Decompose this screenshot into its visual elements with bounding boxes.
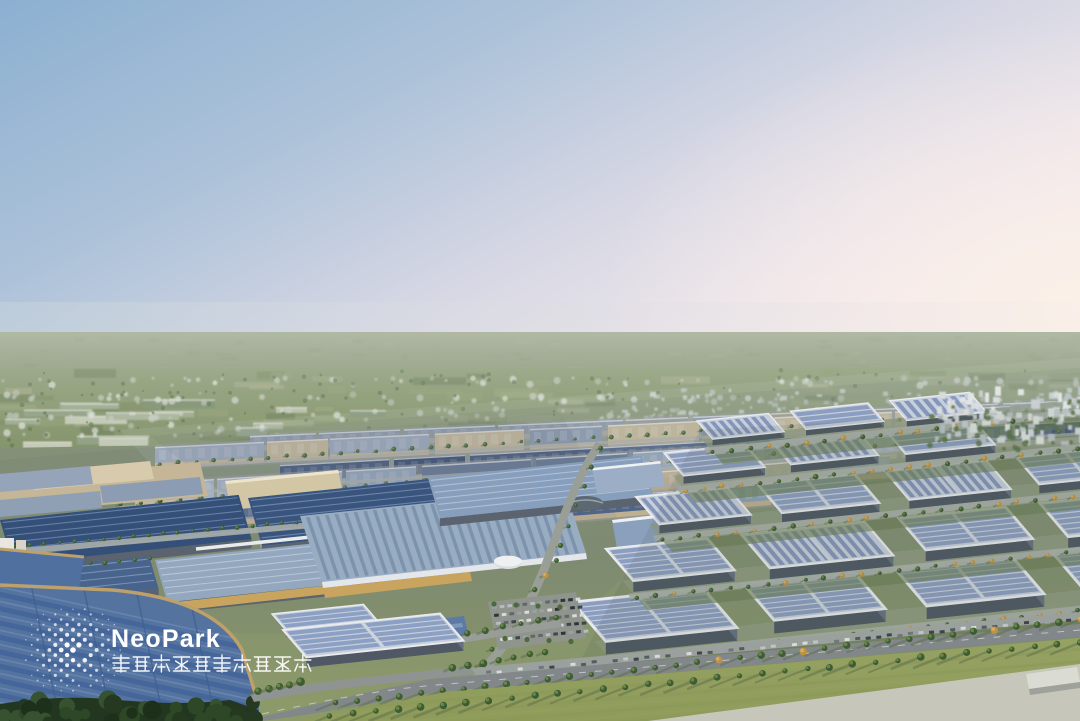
svg-text:NeoPark: NeoPark (111, 625, 221, 653)
